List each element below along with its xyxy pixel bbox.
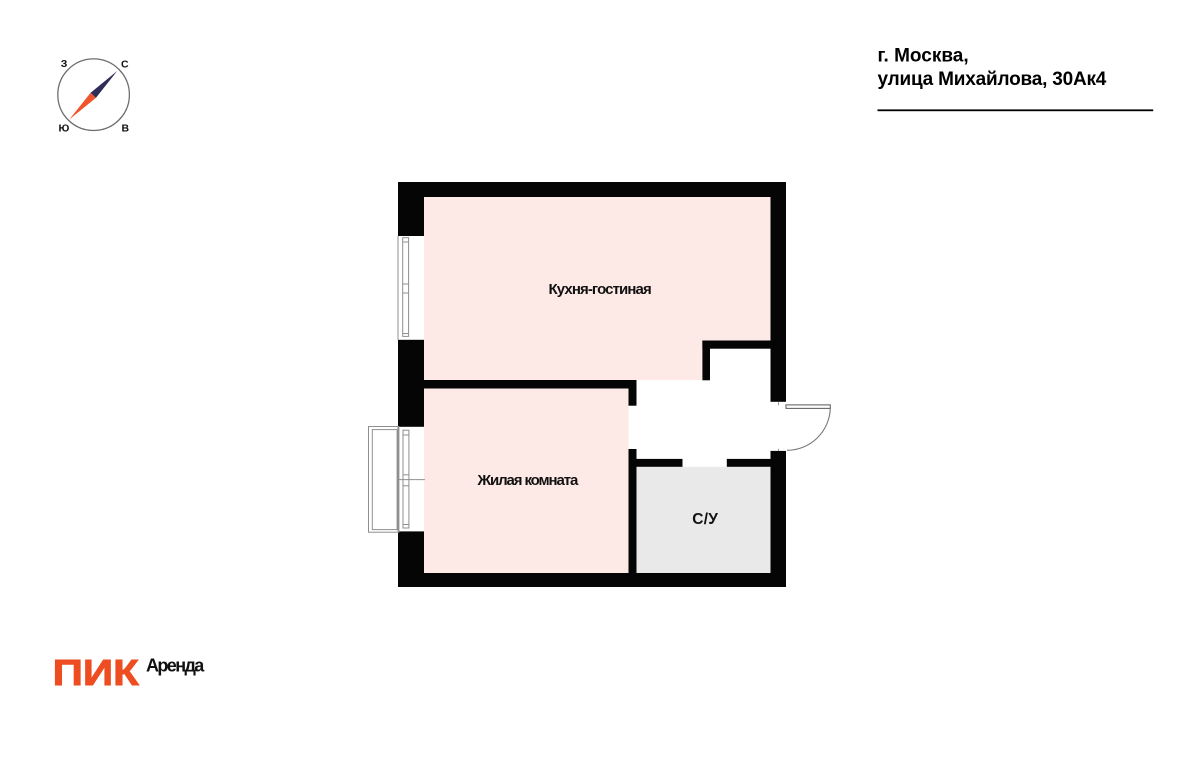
svg-text:Ю: Ю (59, 123, 70, 135)
svg-text:ПИК: ПИК (53, 654, 139, 694)
svg-text:г. Москва,: г. Москва, (878, 46, 969, 67)
svg-text:В: В (122, 122, 130, 134)
svg-text:Аренда: Аренда (146, 656, 205, 676)
svg-text:З: З (61, 58, 68, 70)
svg-text:С/У: С/У (692, 511, 718, 528)
svg-text:С: С (121, 58, 129, 70)
svg-text:Кухня-гостиная: Кухня-гостиная (549, 281, 651, 298)
svg-text:Жилая комната: Жилая комната (477, 472, 579, 489)
svg-text:улица Михайлова, 30Ак4: улица Михайлова, 30Ак4 (878, 69, 1107, 90)
